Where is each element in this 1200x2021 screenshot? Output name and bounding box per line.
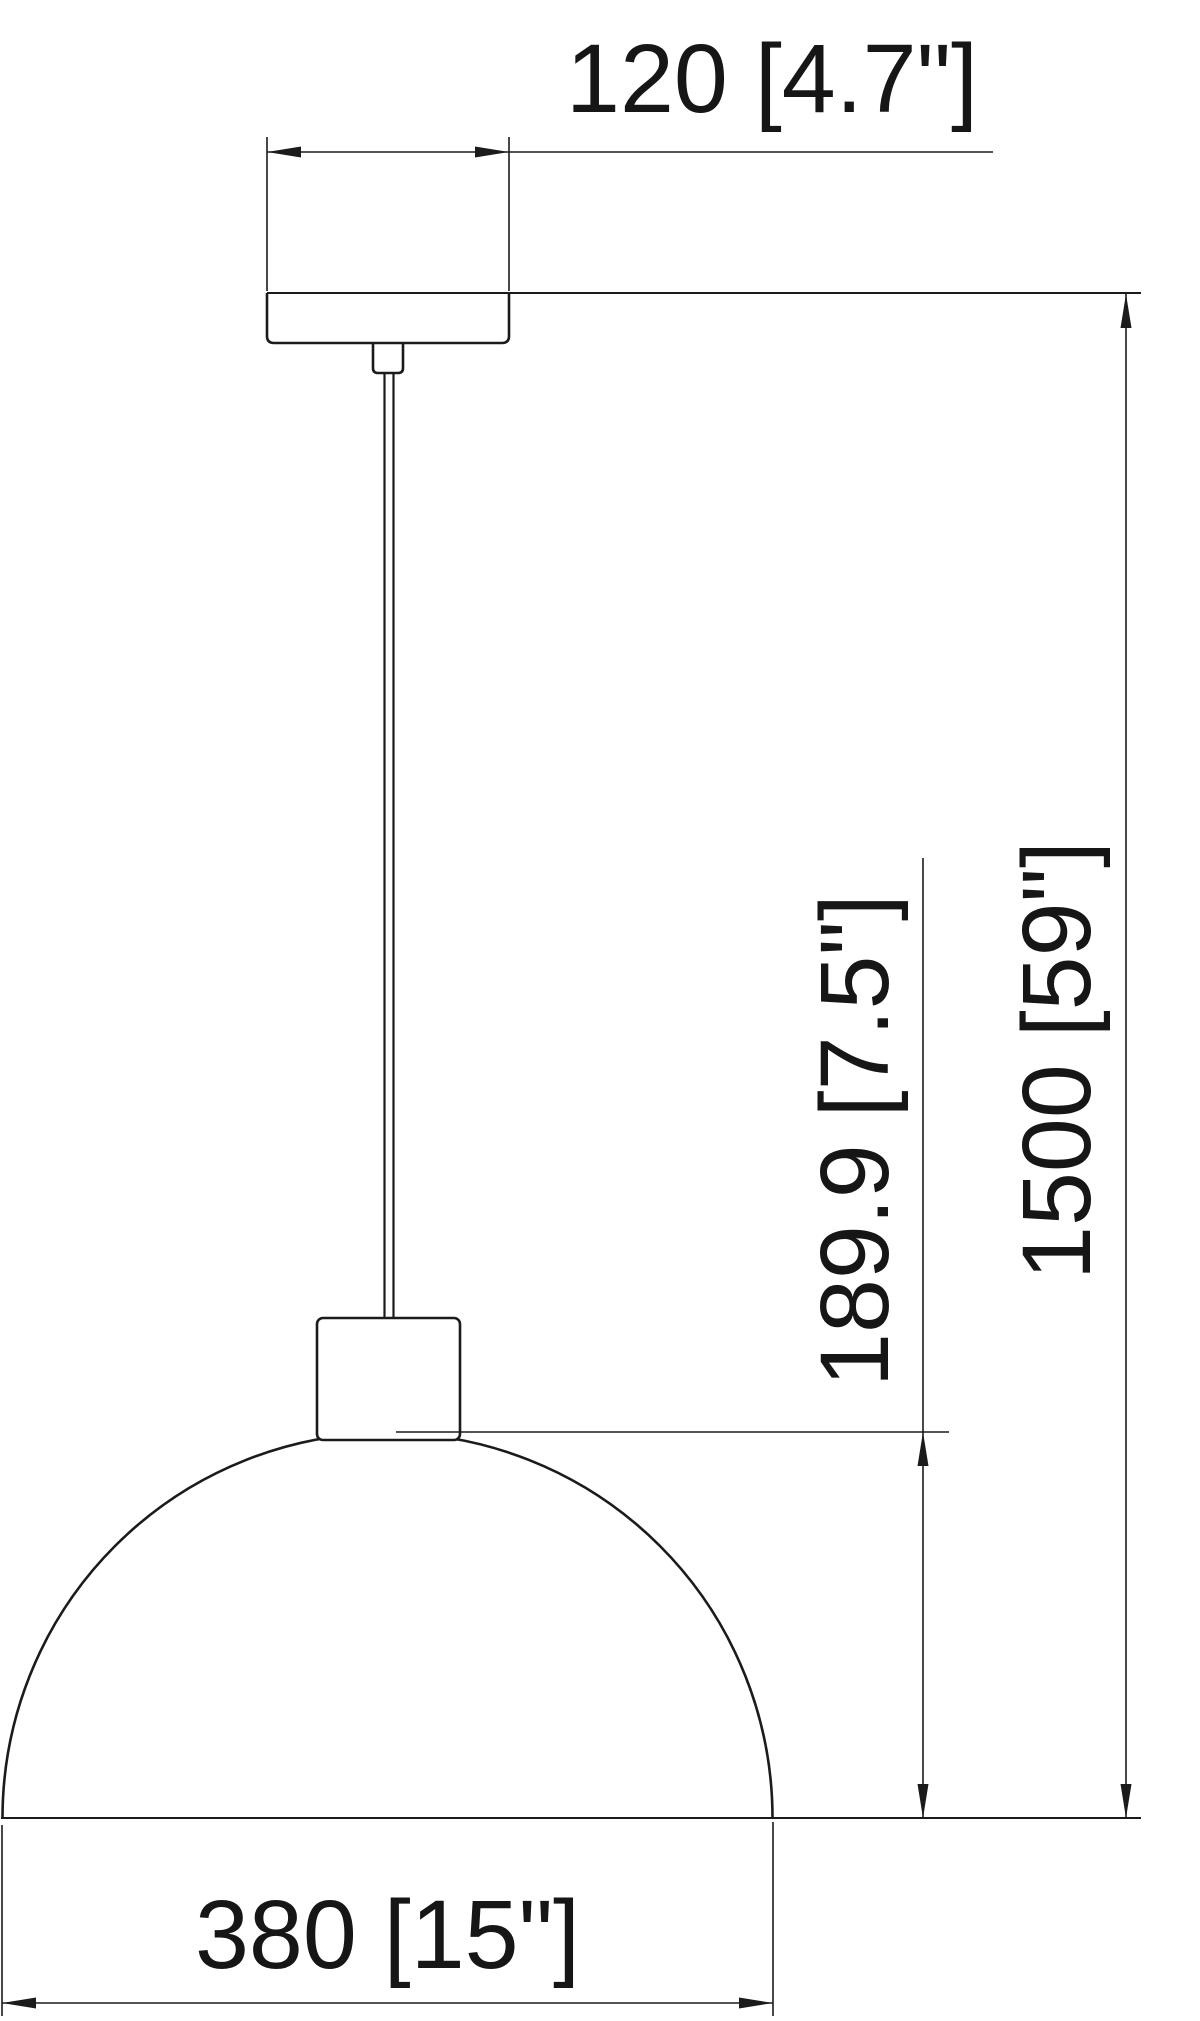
arrow-shade-height-down [918, 1784, 929, 1818]
shade-dome [3, 1433, 773, 1818]
overall-drop-label: 1500 [59"] [1002, 841, 1111, 1280]
canopy [267, 293, 509, 343]
lamp-outline [3, 293, 773, 1818]
socket-block [317, 1318, 460, 1440]
dimension-lines [1, 137, 1141, 2016]
arrowheads [2, 147, 1132, 2009]
lamp-dimension-drawing: 120 [4.7"] 189.9 [7.5"] 1500 [59"] 380 [… [0, 0, 1200, 2021]
shade-height-label: 189.9 [7.5"] [800, 894, 909, 1387]
shade-diameter-label: 380 [15"] [195, 1880, 580, 1989]
arrow-shade-diameter-left [2, 1998, 36, 2009]
arrow-shade-height-up [918, 1432, 929, 1466]
canopy-stem [373, 343, 403, 373]
drawing-sheet: 120 [4.7"] 189.9 [7.5"] 1500 [59"] 380 [… [0, 0, 1200, 2021]
canopy-width-label: 120 [4.7"] [566, 24, 978, 133]
arrow-canopy-right [475, 147, 509, 158]
dimension-labels: 120 [4.7"] 189.9 [7.5"] 1500 [59"] 380 [… [195, 24, 1111, 1989]
arrow-canopy-left [267, 147, 301, 158]
arrow-shade-diameter-right [739, 1998, 773, 2009]
arrow-overall-drop-up [1121, 294, 1132, 328]
arrow-overall-drop-down [1121, 1784, 1132, 1818]
